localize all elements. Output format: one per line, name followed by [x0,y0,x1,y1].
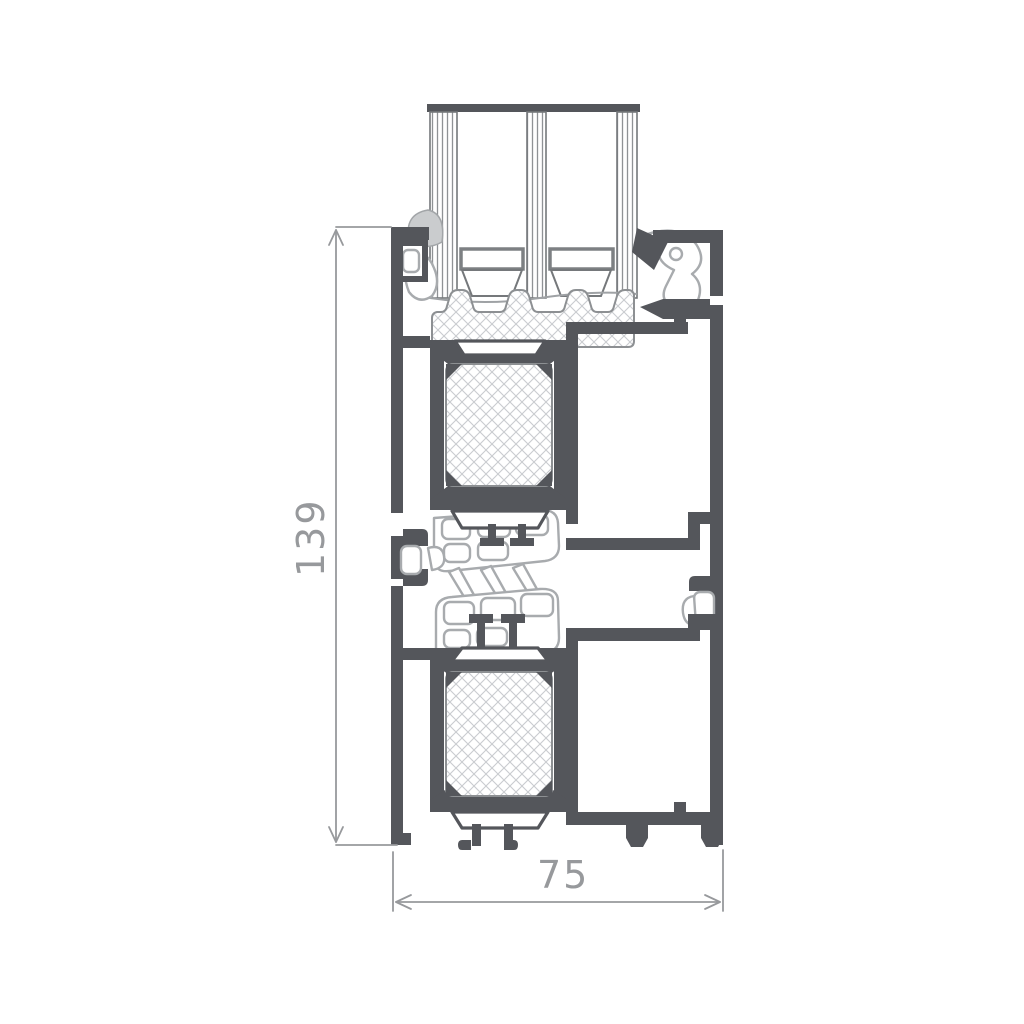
bar-nub [674,802,686,812]
gasket-hole [670,248,682,260]
width-dimension-label: 75 [537,853,589,897]
gasket-chamber [444,630,470,648]
frame-foot [701,825,723,847]
bottom-nub [403,833,411,845]
sash-bottom-bar [430,486,568,510]
upper-sash-profile [430,340,568,546]
center-wall-lower [566,628,578,812]
bead-groove [455,341,545,355]
drain-notch [710,296,723,305]
wall-stub [391,336,430,348]
right-outer-wall [710,230,723,845]
chamber-top-bar [566,322,688,334]
thermal-break-lower [446,672,552,796]
clip-gasket-tongue [428,547,444,570]
center-wall-upper [566,322,578,524]
glass-spacer-bar [550,249,613,269]
gasket-chamber [521,594,553,616]
glass-pane [527,112,546,298]
hardware-groove [452,648,548,661]
clip-gasket [401,546,421,574]
chamber-bottom-bar [566,812,723,825]
vertical-dimension: 139 [289,227,397,845]
glass-spacer-bar [461,249,523,269]
lower-chamber-top-bar [566,628,700,641]
left-top-flange [391,227,429,240]
hardware-groove [452,511,548,528]
step-bar-left [566,538,700,550]
left-wall-upper [391,240,403,513]
left-wall-lower [391,586,403,845]
technical-drawing-canvas: 139 75 [0,0,1024,1024]
bar-nub [674,312,686,322]
frame-wall-right [554,648,568,812]
profile-section-drawing: 139 75 [0,0,1024,1024]
sash-wall-right [554,340,568,510]
thermal-break-upper [446,364,552,486]
horizontal-dimension: 75 [393,850,723,911]
height-dimension-label: 139 [289,498,333,577]
sash-wall-left [430,340,444,510]
frame-wall-left [430,648,444,812]
right-frame-chambers [566,230,723,847]
lower-frame-profile [430,614,568,850]
bottom-groove [452,812,548,828]
keeper-gasket [403,250,419,272]
wall-stub [391,648,430,660]
gasket-chamber [444,544,470,562]
glass-pane [617,112,637,298]
frame-foot [626,825,648,847]
glass-top-cap [427,104,640,112]
central-gasket-assembly [434,510,559,661]
glazing-unit [427,104,640,302]
